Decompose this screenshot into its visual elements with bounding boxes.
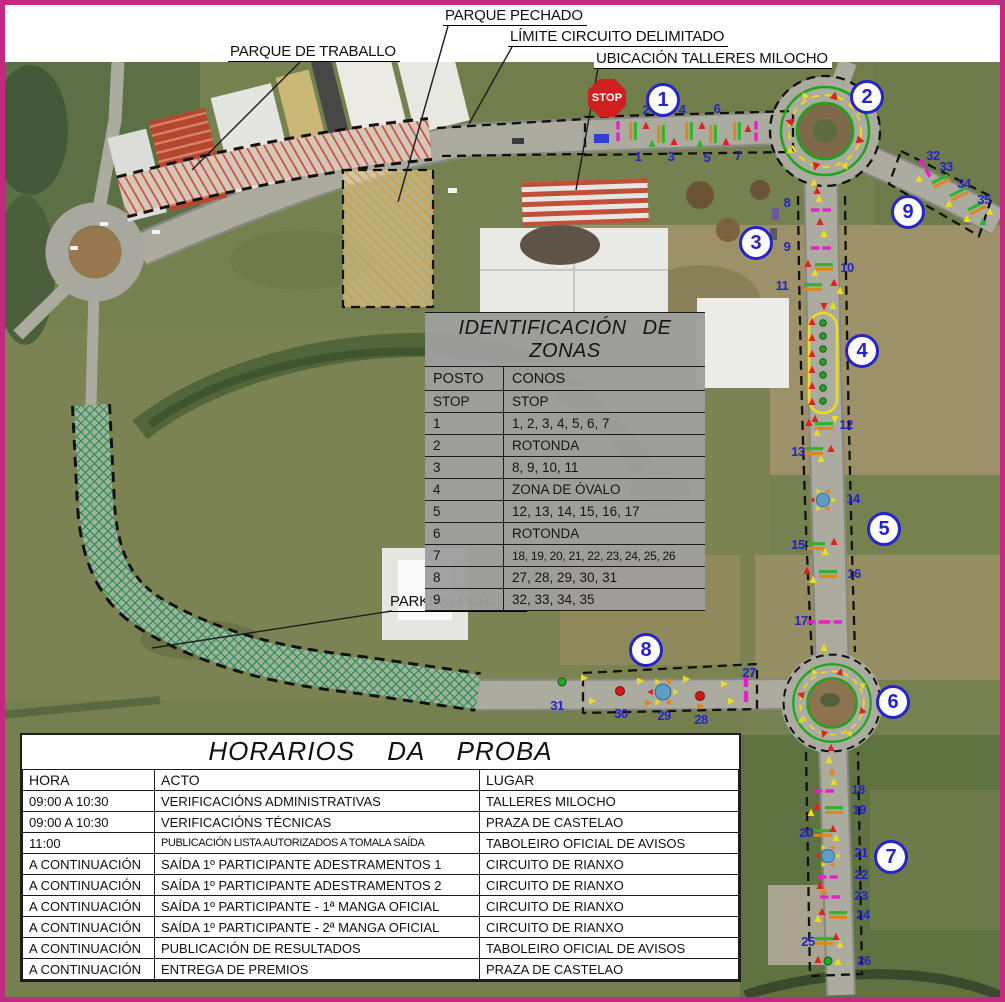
- cone-number: 34: [954, 176, 974, 191]
- cone-number: 21: [851, 845, 871, 860]
- zone-badge-2: 2: [850, 80, 884, 114]
- table-row: 4ZONA DE ÓVALO: [425, 479, 705, 501]
- schedule-header-hora: HORA: [23, 770, 155, 791]
- cone-number: 10: [837, 260, 857, 275]
- zone-badge-4: 4: [845, 334, 879, 368]
- table-row: 2ROTONDA: [425, 435, 705, 457]
- table-cell: CIRCUITO DE RIANXO: [480, 854, 739, 875]
- table-cell: 1: [425, 413, 504, 435]
- cone-number: 23: [851, 888, 871, 903]
- table-cell: ROTONDA: [504, 435, 706, 457]
- table-cell: 4: [425, 479, 504, 501]
- cone-number: 2: [636, 102, 656, 117]
- table-cell: 2: [425, 435, 504, 457]
- table-cell: ZONA DE ÓVALO: [504, 479, 706, 501]
- table-row: A CONTINUACIÓNSAÍDA 1º PARTICIPANTE ADES…: [23, 875, 739, 896]
- stop-sign-label: STOP: [592, 92, 623, 104]
- table-cell: 32, 33, 34, 35: [504, 589, 706, 611]
- zone-badge-8: 8: [629, 633, 663, 667]
- table-cell: 8: [425, 567, 504, 589]
- table-cell: A CONTINUACIÓN: [23, 959, 155, 980]
- table-cell: PRAZA DE CASTELAO: [480, 959, 739, 980]
- cone-number: 14: [843, 491, 863, 506]
- table-row: 512, 13, 14, 15, 16, 17: [425, 501, 705, 523]
- cone-number: 20: [796, 825, 816, 840]
- table-cell: VERIFICACIÓNS TÉCNICAS: [155, 812, 480, 833]
- cone-number: 6: [707, 101, 727, 116]
- table-cell: 09:00 A 10:30: [23, 791, 155, 812]
- cone-number: 24: [853, 907, 873, 922]
- cone-number: 5: [697, 150, 717, 165]
- table-cell: VERIFICACIÓNS ADMINISTRATIVAS: [155, 791, 480, 812]
- cone-number: 28: [691, 712, 711, 727]
- cone-number: 3: [661, 149, 681, 164]
- table-cell: TALLERES MILOCHO: [480, 791, 739, 812]
- callout-ubicacion-talleres: UBICACIÓN TALLERES MILOCHO: [594, 50, 832, 69]
- table-row: 11:00PUBLICACIÓN LISTA AUTORIZADOS A TOM…: [23, 833, 739, 854]
- table-cell: CIRCUITO DE RIANXO: [480, 875, 739, 896]
- table-row: 932, 33, 34, 35: [425, 589, 705, 611]
- table-header-row: HORA ACTO LUGAR: [23, 770, 739, 791]
- parque-pechado-area: [343, 170, 433, 307]
- table-row: 38, 9, 10, 11: [425, 457, 705, 479]
- table-cell: A CONTINUACIÓN: [23, 896, 155, 917]
- table-cell: SAÍDA 1º PARTICIPANTE ADESTRAMENTOS 1: [155, 854, 480, 875]
- schedule-table-title: HORARIOS DA PROBA: [22, 735, 739, 769]
- cone-number: 16: [844, 566, 864, 581]
- table-cell: 9: [425, 589, 504, 611]
- table-cell: SAÍDA 1º PARTICIPANTE - 2ª MANGA OFICIAL: [155, 917, 480, 938]
- cone-number: 4: [672, 102, 692, 117]
- cone-number: 9: [777, 239, 797, 254]
- table-cell: TABOLEIRO OFICIAL DE AVISOS: [480, 938, 739, 959]
- table-row: 827, 28, 29, 30, 31: [425, 567, 705, 589]
- callout-parque-pechado: PARQUE PECHADO: [443, 7, 587, 26]
- table-cell: A CONTINUACIÓN: [23, 854, 155, 875]
- zone-badge-7: 7: [874, 840, 908, 874]
- cone-number: 29: [654, 708, 674, 723]
- table-row: 718, 19, 20, 21, 22, 23, 24, 25, 26: [425, 545, 705, 567]
- table-cell: ENTREGA DE PREMIOS: [155, 959, 480, 980]
- zone-badge-6: 6: [876, 685, 910, 719]
- schedule-table: HORA ACTO LUGAR 09:00 A 10:30VERIFICACIÓ…: [22, 769, 739, 980]
- table-cell: 3: [425, 457, 504, 479]
- zone-badge-9: 9: [891, 195, 925, 229]
- zone-badge-5: 5: [867, 512, 901, 546]
- zones-table-title: IDENTIFICACIÓN DE ZONAS: [425, 313, 705, 367]
- table-cell: 27, 28, 29, 30, 31: [504, 567, 706, 589]
- table-row: STOPSTOP: [425, 391, 705, 413]
- table-cell: PUBLICACIÓN LISTA AUTORIZADOS A TOMALA S…: [155, 833, 480, 854]
- table-cell: 12, 13, 14, 15, 16, 17: [504, 501, 706, 523]
- table-cell: A CONTINUACIÓN: [23, 938, 155, 959]
- cone-number: 31: [547, 698, 567, 713]
- zones-header-posto: POSTO: [425, 367, 504, 391]
- table-cell: A CONTINUACIÓN: [23, 917, 155, 938]
- cone-number: 27: [739, 665, 759, 680]
- table-row: A CONTINUACIÓNENTREGA DE PREMIOSPRAZA DE…: [23, 959, 739, 980]
- table-row: A CONTINUACIÓNSAÍDA 1º PARTICIPANTE - 2ª…: [23, 917, 739, 938]
- zones-identification-panel: IDENTIFICACIÓN DE ZONAS POSTO CONOS STOP…: [425, 312, 705, 611]
- table-cell: CIRCUITO DE RIANXO: [480, 896, 739, 917]
- table-cell: 7: [425, 545, 504, 567]
- cone-number: 7: [728, 148, 748, 163]
- zones-table: POSTO CONOS STOPSTOP11, 2, 3, 4, 5, 6, 7…: [425, 367, 705, 611]
- table-cell: A CONTINUACIÓN: [23, 875, 155, 896]
- table-cell: SAÍDA 1º PARTICIPANTE ADESTRAMENTOS 2: [155, 875, 480, 896]
- table-cell: 6: [425, 523, 504, 545]
- schedule-panel: HORARIOS DA PROBA HORA ACTO LUGAR 09:00 …: [20, 733, 741, 982]
- cone-number: 11: [772, 278, 792, 293]
- callout-parque-de-traballo: PARQUE DE TRABALLO: [228, 43, 400, 62]
- cone-number: 30: [611, 706, 631, 721]
- table-row: A CONTINUACIÓNSAÍDA 1º PARTICIPANTE ADES…: [23, 854, 739, 875]
- schedule-header-lugar: LUGAR: [480, 770, 739, 791]
- table-cell: SAÍDA 1º PARTICIPANTE - 1ª MANGA OFICIAL: [155, 896, 480, 917]
- cone-number: 33: [936, 159, 956, 174]
- table-cell: 8, 9, 10, 11: [504, 457, 706, 479]
- table-cell: PUBLICACIÓN DE RESULTADOS: [155, 938, 480, 959]
- cone-number: 12: [836, 417, 856, 432]
- table-cell: 18, 19, 20, 21, 22, 23, 24, 25, 26: [504, 545, 706, 567]
- table-row: 09:00 A 10:30VERIFICACIÓNS TÉCNICASPRAZA…: [23, 812, 739, 833]
- cone-number: 8: [777, 195, 797, 210]
- event-map-poster: PARQUE DE TRABALLO PARQUE PECHADO LÍMITE…: [0, 0, 1005, 1002]
- table-cell: CIRCUITO DE RIANXO: [480, 917, 739, 938]
- cone-number: 17: [791, 613, 811, 628]
- cone-number: 1: [628, 149, 648, 164]
- cone-number: 19: [849, 802, 869, 817]
- cone-number: 15: [788, 537, 808, 552]
- table-cell: STOP: [425, 391, 504, 413]
- table-row: A CONTINUACIÓNPUBLICACIÓN DE RESULTADOST…: [23, 938, 739, 959]
- table-row: 09:00 A 10:30VERIFICACIÓNS ADMINISTRATIV…: [23, 791, 739, 812]
- table-row: 6ROTONDA: [425, 523, 705, 545]
- table-cell: 09:00 A 10:30: [23, 812, 155, 833]
- schedule-header-acto: ACTO: [155, 770, 480, 791]
- zone-badge-3: 3: [739, 226, 773, 260]
- table-cell: PRAZA DE CASTELAO: [480, 812, 739, 833]
- cone-number: 13: [788, 444, 808, 459]
- cone-number: 18: [848, 782, 868, 797]
- table-cell: 5: [425, 501, 504, 523]
- cone-number: 35: [974, 192, 994, 207]
- table-cell: ROTONDA: [504, 523, 706, 545]
- callout-limite-circuito: LÍMITE CIRCUITO DELIMITADO: [508, 28, 728, 47]
- table-cell: TABOLEIRO OFICIAL DE AVISOS: [480, 833, 739, 854]
- cone-number: 25: [798, 934, 818, 949]
- table-header-row: POSTO CONOS: [425, 367, 705, 391]
- zones-header-conos: CONOS: [504, 367, 706, 391]
- table-row: A CONTINUACIÓNSAÍDA 1º PARTICIPANTE - 1ª…: [23, 896, 739, 917]
- table-row: 11, 2, 3, 4, 5, 6, 7: [425, 413, 705, 435]
- stop-sign-icon: STOP: [588, 79, 626, 117]
- cone-number: 26: [854, 953, 874, 968]
- table-cell: STOP: [504, 391, 706, 413]
- cone-number: 22: [851, 867, 871, 882]
- table-cell: 11:00: [23, 833, 155, 854]
- table-cell: 1, 2, 3, 4, 5, 6, 7: [504, 413, 706, 435]
